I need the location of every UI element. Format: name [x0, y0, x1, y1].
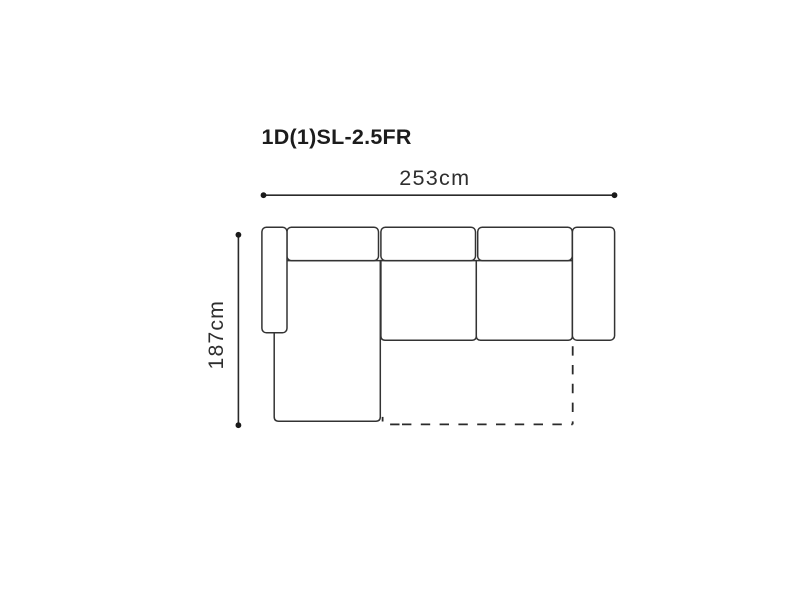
- svg-text:187cm: 187cm: [204, 300, 228, 369]
- svg-text:1D(1)SL-2.5FR: 1D(1)SL-2.5FR: [262, 125, 412, 149]
- svg-text:253cm: 253cm: [399, 165, 470, 190]
